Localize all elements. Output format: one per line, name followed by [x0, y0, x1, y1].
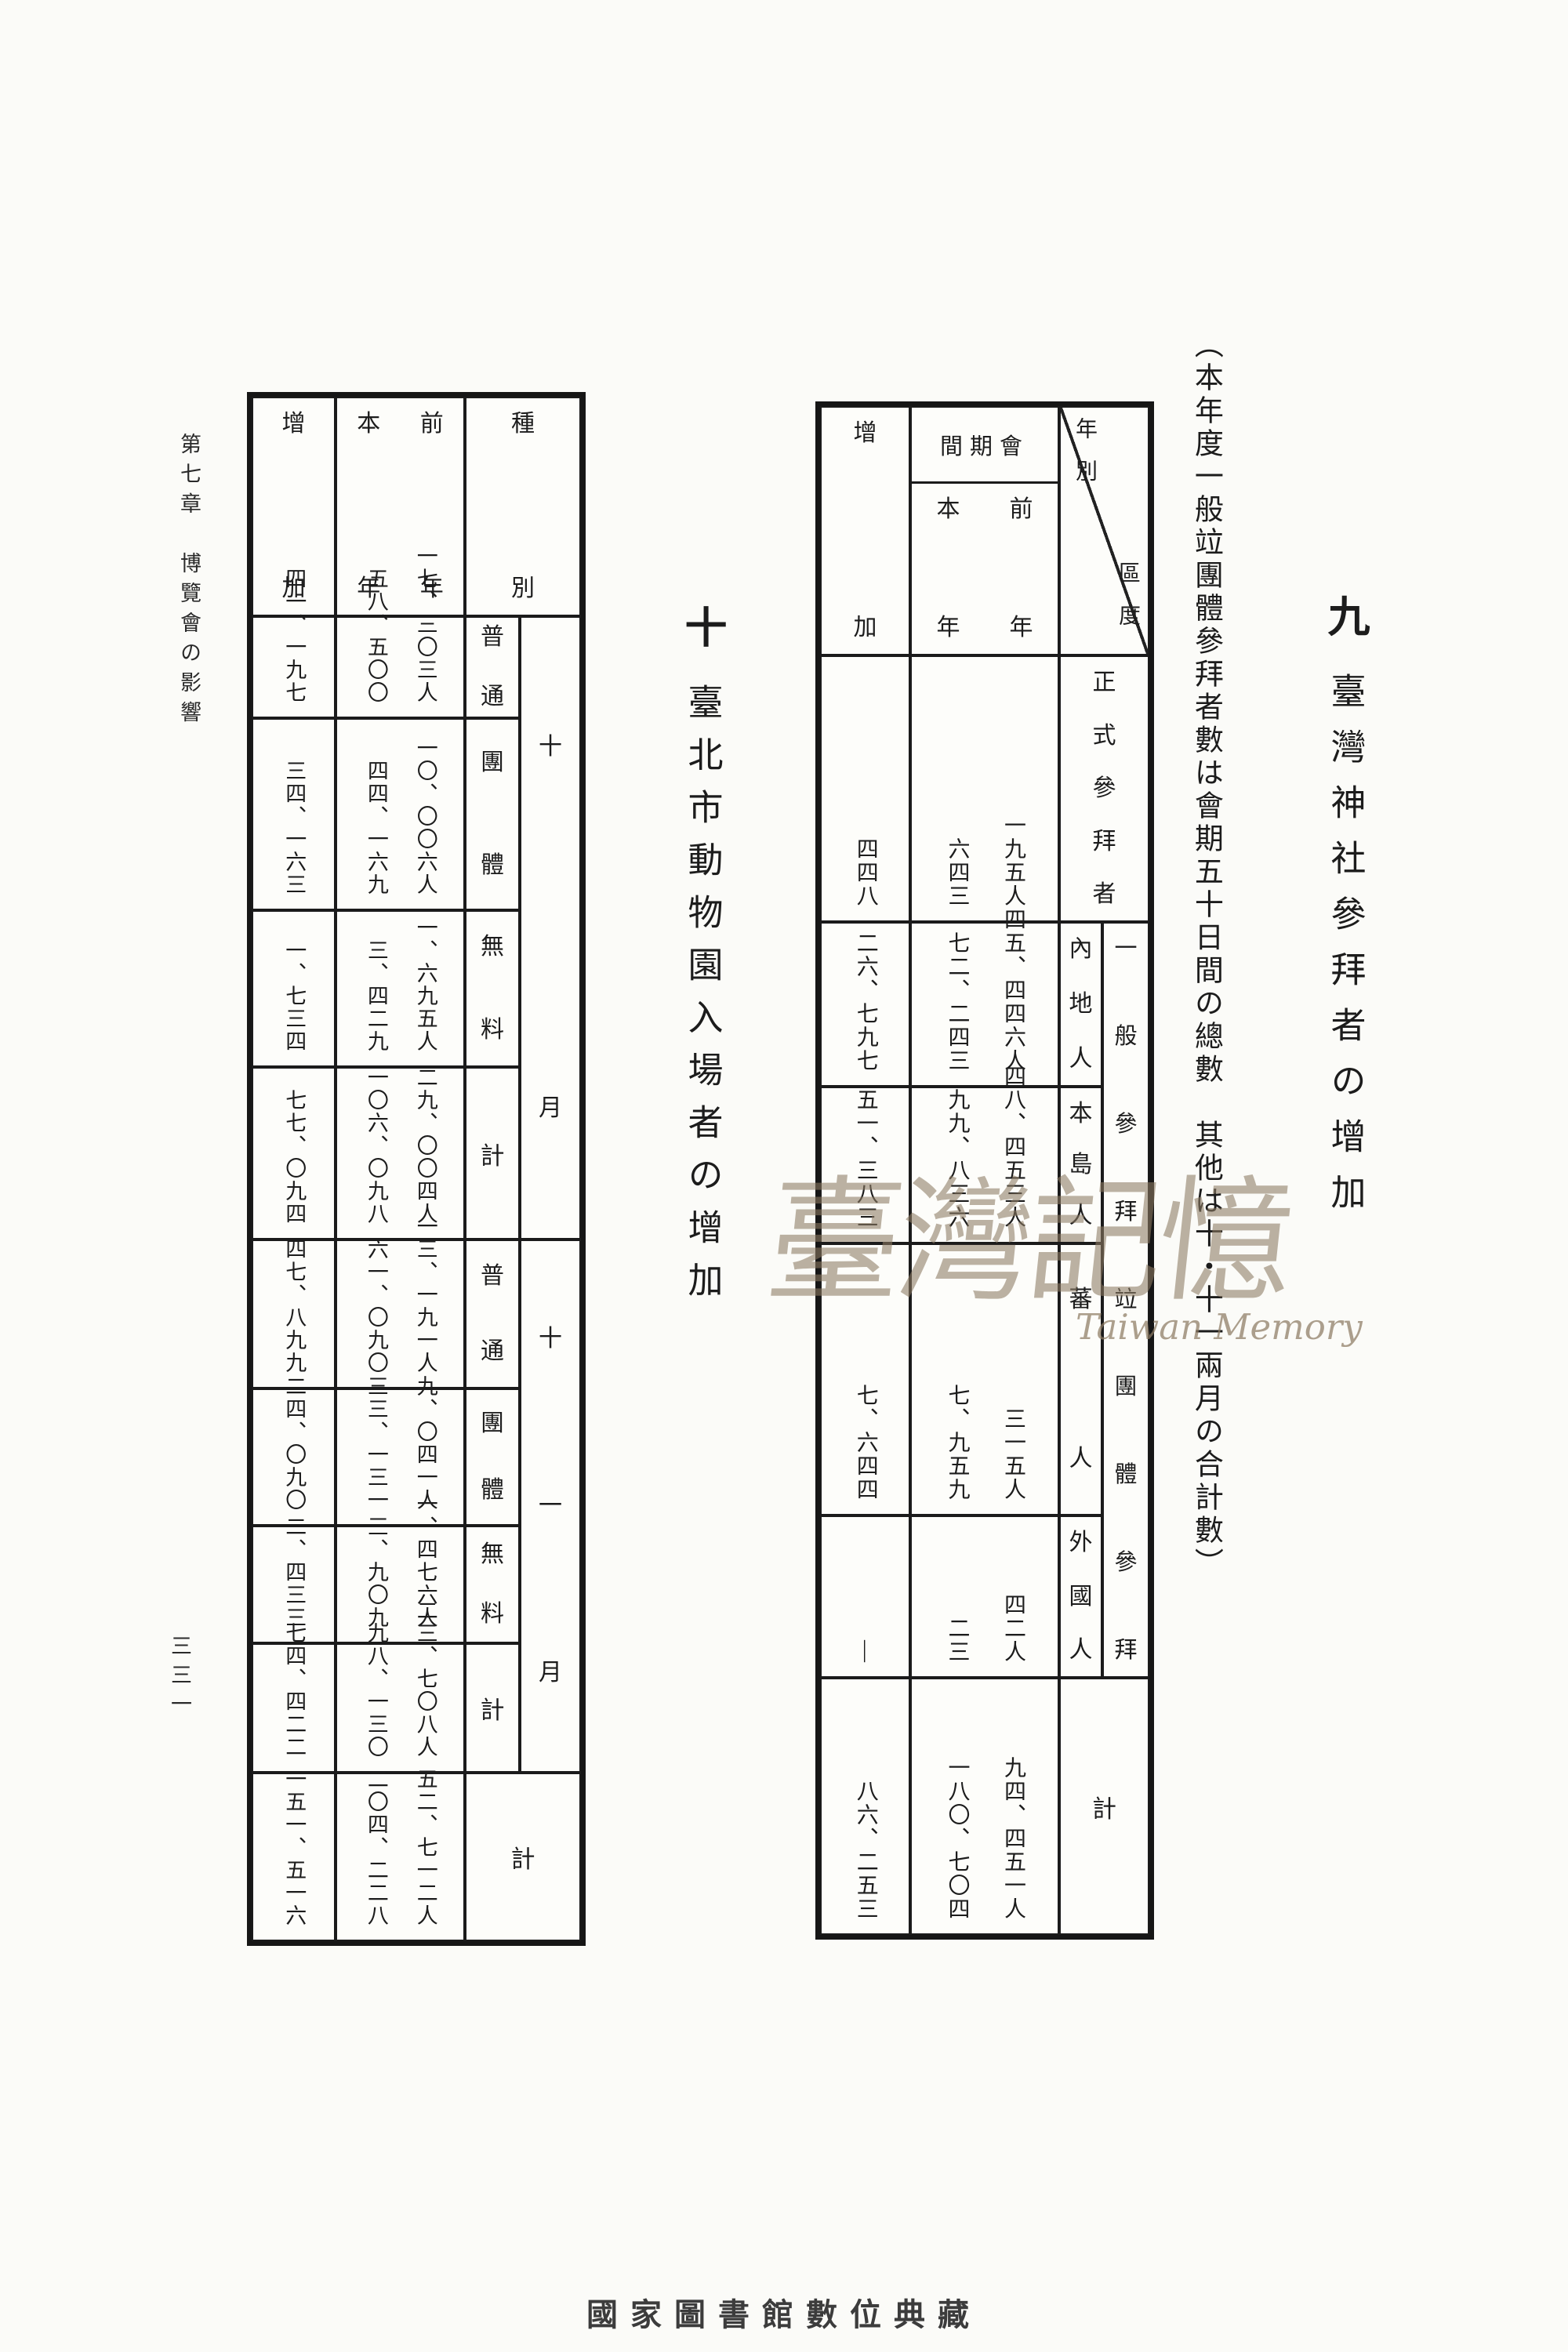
zoo-october-group-cell: 十月 — [520, 616, 581, 1240]
shrine-hontou-increase-cell: 五一、三八三 — [820, 1087, 910, 1243]
shrine-corner-upper-label: 年別 — [1069, 417, 1100, 502]
zoo-nov-total-current-value: 九八、一三〇 — [365, 1622, 387, 1759]
zoo-oct-group-label-cell: 團體 — [465, 718, 520, 910]
zoo-oct-group-previous-value: 一〇、〇〇六人 — [414, 737, 436, 896]
zoo-oct-free-previous-value: 一、六九五人 — [414, 916, 436, 1053]
shrine-naichi-years-cell: 七二、二四三 四五、四四六人 — [910, 922, 1059, 1087]
zoo-nov-total-increase-cell: 七四、四二二 — [252, 1643, 336, 1773]
zoo-oct-free-years-cell: 三、四二九 一、六九五人 — [336, 910, 465, 1067]
shrine-ban-previous-value: 三一五人 — [1001, 1407, 1024, 1501]
section-9-title: 臺灣神社參拜者の增加 — [1327, 673, 1363, 1229]
shrine-ban-current-value: 七、九五九 — [946, 1384, 968, 1501]
zoo-nov-total-label-cell: 計 — [465, 1643, 520, 1773]
shrine-header-increase-label: 增加 — [822, 408, 909, 654]
page-number: 三三一 — [165, 1635, 195, 1722]
zoo-oct-free-label-cell: 無料 — [465, 910, 520, 1067]
shrine-general-group-cell: 一般參拜竝團體參拜 — [1102, 922, 1149, 1678]
zoo-oct-ordinary-increase-value: 四一、一九七 — [283, 568, 305, 704]
zoo-grand-total-label: 計 — [511, 1839, 535, 1875]
shrine-ban-increase-cell: 七、六四四 — [820, 1243, 910, 1515]
zoo-oct-ordinary-label-cell: 普通 — [465, 616, 520, 718]
zoo-grand-total-increase-cell: 一五一、五一六 — [252, 1773, 336, 1941]
shrine-foreign-current-value: 二三 — [946, 1617, 968, 1664]
zoo-nov-group-increase-value: 二四、〇九〇 — [283, 1375, 305, 1512]
shrine-naichi-label: 內地人 — [1061, 924, 1101, 1085]
zoo-november-group-cell: 十一月 — [520, 1240, 581, 1773]
zoo-nov-ordinary-increase-value: 四七、八九九 — [283, 1238, 305, 1374]
zoo-oct-total-increase-cell: 七七、〇九四 — [252, 1067, 336, 1240]
zoo-nov-ordinary-label-cell: 普通 — [465, 1240, 520, 1388]
shrine-hontou-label: 本島人 — [1061, 1088, 1101, 1242]
zoo-nov-free-label: 無料 — [466, 1527, 518, 1642]
shrine-corner-cell: 年別 區度 — [1059, 406, 1149, 655]
shrine-total-years-cell: 一八〇、七〇四 九四、四五一人 — [910, 1678, 1059, 1935]
shrine-hontou-label-cell: 本島人 — [1059, 1087, 1102, 1243]
zoo-header-category-cell: 種別 — [465, 397, 581, 616]
zoo-visitors-table: 增加 本年 前年 種別 四一、一九七 五八、五〇〇 一七、三〇三人 普通 十月 … — [247, 392, 586, 1946]
section-10-title: 臺北市動物園入場者の增加 — [684, 684, 720, 1314]
zoo-october-group-label: 十月 — [521, 618, 579, 1238]
zoo-oct-group-increase-value: 三四、一六三 — [283, 760, 305, 896]
shrine-naichi-label-cell: 內地人 — [1059, 922, 1102, 1087]
section-10-heading: 十 臺北市動物園入場者の增加 — [681, 605, 723, 1314]
shrine-header-years-cell: 間期會 本年 前年 — [910, 406, 1059, 655]
zoo-nov-ordinary-current-value: 六一、〇九〇 — [365, 1238, 387, 1374]
zoo-nov-ordinary-years-cell: 六一、〇九〇 一三、一九一人 — [336, 1240, 465, 1388]
library-footer-caption: 國家圖書館數位典藏 — [0, 2289, 1568, 2335]
zoo-oct-total-previous-value: 二九、〇〇四人 — [414, 1066, 436, 1225]
shrine-official-current-value: 六四三 — [946, 837, 968, 908]
shrine-header-increase-cell: 增加 — [820, 406, 910, 655]
zoo-nov-group-increase-cell: 二四、〇九〇 — [252, 1388, 336, 1526]
zoo-nov-free-years-cell: 三、九〇九 一、四七六人 — [336, 1526, 465, 1643]
zoo-oct-group-label: 團體 — [466, 720, 518, 909]
shrine-official-years-cell: 六四三 一九五人 — [910, 655, 1059, 922]
zoo-nov-group-label-cell: 團體 — [465, 1388, 520, 1526]
zoo-oct-total-years-cell: 一〇六、〇九八 二九、〇〇四人 — [336, 1067, 465, 1240]
zoo-nov-free-label-cell: 無料 — [465, 1526, 520, 1643]
zoo-oct-group-current-value: 四四、一六九 — [365, 760, 387, 896]
zoo-nov-ordinary-increase-cell: 四七、八九九 — [252, 1240, 336, 1388]
zoo-oct-ordinary-label: 普通 — [466, 618, 518, 717]
shrine-naichi-increase-value: 二六、七九七 — [854, 931, 877, 1073]
shrine-total-current-value: 一八〇、七〇四 — [946, 1756, 968, 1921]
zoo-oct-total-label: 計 — [481, 1136, 505, 1171]
shrine-ban-years-cell: 七、九五九 三一五人 — [910, 1243, 1059, 1515]
shrine-official-previous-value: 一九五人 — [1001, 814, 1024, 908]
section-10-number: 十 — [681, 605, 723, 648]
zoo-oct-group-increase-cell: 三四、一六三 — [252, 718, 336, 910]
section-9-heading: 九 臺灣神社參拜者の增加 — [1323, 594, 1366, 1229]
shrine-hontou-increase-value: 五一、三八三 — [854, 1088, 877, 1229]
zoo-oct-ordinary-current-value: 五八、五〇〇 — [365, 568, 387, 704]
shrine-total-label: 計 — [1092, 1789, 1116, 1824]
shrine-foreign-years-cell: 二三 四二人 — [910, 1515, 1059, 1678]
zoo-header-years-cell: 本年 前年 — [336, 397, 465, 616]
shrine-naichi-previous-value: 四五、四四六人 — [1001, 908, 1024, 1073]
shrine-foreign-previous-value: 四二人 — [1001, 1593, 1024, 1664]
shrine-foreign-label: 外國人 — [1061, 1517, 1101, 1676]
shrine-total-increase-value: 八六、二五三 — [854, 1780, 877, 1921]
zoo-nov-total-previous-value: 二三、七〇八人 — [414, 1599, 436, 1759]
shrine-visitors-table: 增加 間期會 本年 前年 年別 區度 四四八 六四三 一九五人 正式參拜者 二六… — [815, 401, 1154, 1940]
shrine-official-label-cell: 正式參拜者 — [1059, 655, 1149, 922]
zoo-oct-group-years-cell: 四四、一六九 一〇、〇〇六人 — [336, 718, 465, 910]
zoo-nov-group-previous-value: 九、〇四一人 — [414, 1375, 436, 1512]
shrine-naichi-current-value: 七二、二四三 — [946, 931, 968, 1073]
zoo-nov-group-current-value: 三三、一三一 — [365, 1375, 387, 1512]
zoo-oct-free-label: 無料 — [466, 912, 518, 1065]
zoo-grand-total-current-value: 二〇四、二二八 — [365, 1768, 387, 1927]
shrine-official-label: 正式參拜者 — [1061, 657, 1148, 920]
zoo-oct-total-current-value: 一〇六、〇九八 — [365, 1066, 387, 1225]
zoo-nov-ordinary-previous-value: 一三、一九一人 — [414, 1215, 436, 1374]
zoo-nov-ordinary-label: 普通 — [466, 1241, 518, 1387]
zoo-nov-total-increase-value: 七四、四二二 — [283, 1622, 305, 1759]
section-9-note: （本年度一般竝團體參拜者數は會期五十日間の總數 其他は十・十一兩月の合計數） — [1188, 329, 1222, 1709]
zoo-oct-free-increase-value: 一、七三四 — [283, 939, 305, 1053]
zoo-nov-total-years-cell: 九八、一三〇 二三、七〇八人 — [336, 1643, 465, 1773]
zoo-nov-free-current-value: 三、九〇九 — [365, 1515, 387, 1629]
shrine-official-increase-value: 四四八 — [854, 837, 877, 908]
shrine-hontou-current-value: 九九、八三六 — [946, 1088, 968, 1229]
zoo-oct-ordinary-increase-cell: 四一、一九七 — [252, 616, 336, 718]
zoo-oct-ordinary-years-cell: 五八、五〇〇 一七、三〇三人 — [336, 616, 465, 718]
zoo-november-group-label: 十一月 — [521, 1241, 579, 1771]
zoo-oct-free-increase-cell: 一、七三四 — [252, 910, 336, 1067]
zoo-nov-group-label: 團體 — [466, 1390, 518, 1524]
shrine-general-group-label: 一般參拜竝團體參拜 — [1104, 924, 1148, 1676]
shrine-naichi-increase-cell: 二六、七九七 — [820, 922, 910, 1087]
zoo-grand-total-label-cell: 計 — [465, 1773, 581, 1941]
zoo-header-category-label: 種別 — [466, 398, 579, 615]
scanned-book-page: 第七章 博覽會の影響 三三一 九 臺灣神社參拜者の增加 （本年度一般竝團體參拜者… — [0, 0, 1568, 2352]
shrine-ban-label-cell: 蕃人 — [1059, 1243, 1102, 1515]
shrine-official-increase-cell: 四四八 — [820, 655, 910, 922]
section-9-number: 九 — [1323, 594, 1366, 637]
shrine-header-current-year-label: 本年 — [912, 484, 985, 654]
zoo-nov-total-label: 計 — [481, 1690, 505, 1726]
shrine-hontou-years-cell: 九九、八三六 四八、四五三人 — [910, 1087, 1059, 1243]
zoo-oct-total-increase-value: 七七、〇九四 — [283, 1089, 305, 1225]
zoo-grand-total-years-cell: 二〇四、二二八 五二、七一二人 — [336, 1773, 465, 1941]
zoo-nov-group-years-cell: 三三、一三一 九、〇四一人 — [336, 1388, 465, 1526]
shrine-hontou-previous-value: 四八、四五三人 — [1001, 1065, 1024, 1229]
shrine-foreign-increase-cell: — — [820, 1515, 910, 1678]
shrine-ban-label: 蕃人 — [1061, 1245, 1101, 1514]
zoo-nov-free-increase-value: 二、四三三 — [283, 1515, 305, 1629]
shrine-total-increase-cell: 八六、二五三 — [820, 1678, 910, 1935]
zoo-grand-total-increase-value: 一五一、五一六 — [283, 1768, 305, 1927]
shrine-ban-increase-value: 七、六四四 — [854, 1384, 877, 1501]
zoo-oct-total-label-cell: 計 — [465, 1067, 520, 1240]
shrine-foreign-increase-value: — — [854, 1640, 877, 1664]
shrine-total-previous-value: 九四、四五一人 — [1001, 1756, 1024, 1921]
zoo-grand-total-previous-value: 五二、七一二人 — [414, 1768, 436, 1927]
shrine-header-session-label: 間期會 — [912, 408, 1058, 484]
zoo-oct-free-current-value: 三、四二九 — [365, 939, 387, 1053]
shrine-header-previous-year-label: 前年 — [985, 484, 1058, 654]
chapter-margin-header: 第七章 博覽會の影響 — [174, 433, 205, 731]
shrine-total-label-cell: 計 — [1059, 1678, 1149, 1935]
shrine-foreign-label-cell: 外國人 — [1059, 1515, 1102, 1678]
zoo-oct-ordinary-previous-value: 一七、三〇三人 — [414, 545, 436, 704]
shrine-corner-lower-label: 區度 — [1112, 561, 1143, 646]
